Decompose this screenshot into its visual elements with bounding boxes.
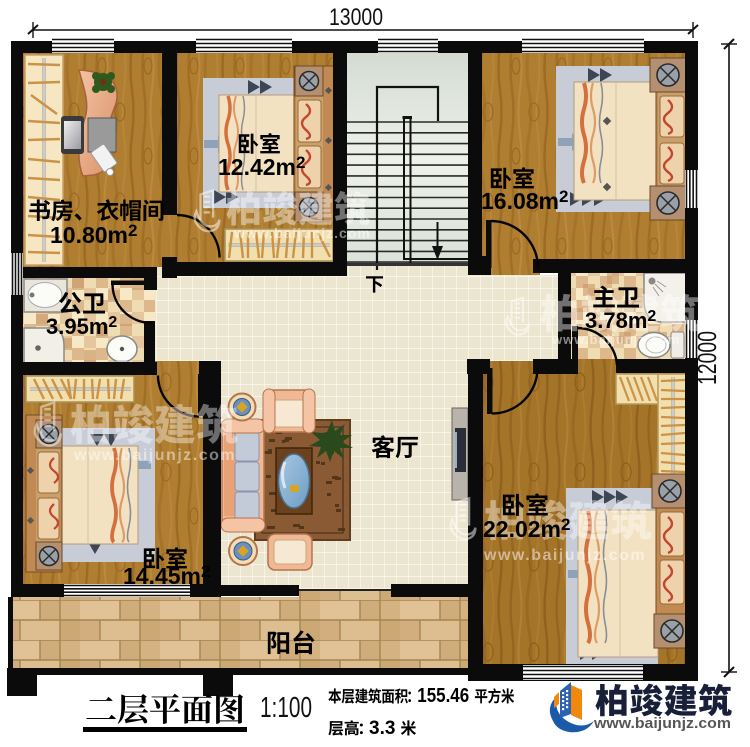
- svg-text:12.42m2: 12.42m2: [218, 153, 305, 180]
- svg-text:www.baijunjz.com: www.baijunjz.com: [233, 225, 371, 241]
- svg-text:3.95m2: 3.95m2: [46, 314, 117, 339]
- svg-text:155.46: 155.46: [417, 684, 469, 707]
- svg-text:14.45m2: 14.45m2: [123, 562, 210, 589]
- svg-text:1:100: 1:100: [260, 692, 312, 724]
- svg-text:www.baijunjz.com: www.baijunjz.com: [593, 715, 731, 732]
- svg-text:www.baijunjz.com: www.baijunjz.com: [483, 547, 646, 564]
- svg-text:www.baijunjz.com: www.baijunjz.com: [73, 447, 236, 464]
- svg-text:3.3: 3.3: [369, 718, 395, 739]
- svg-text:22.02m2: 22.02m2: [483, 515, 570, 542]
- svg-text:10.80m2: 10.80m2: [50, 221, 137, 248]
- svg-text:12000: 12000: [692, 331, 722, 385]
- svg-text:13000: 13000: [329, 4, 383, 31]
- svg-text:16.08m2: 16.08m2: [481, 187, 568, 214]
- svg-text:www.baijunjz.com: www.baijunjz.com: [551, 332, 680, 347]
- svg-text:3.78m2: 3.78m2: [585, 308, 656, 333]
